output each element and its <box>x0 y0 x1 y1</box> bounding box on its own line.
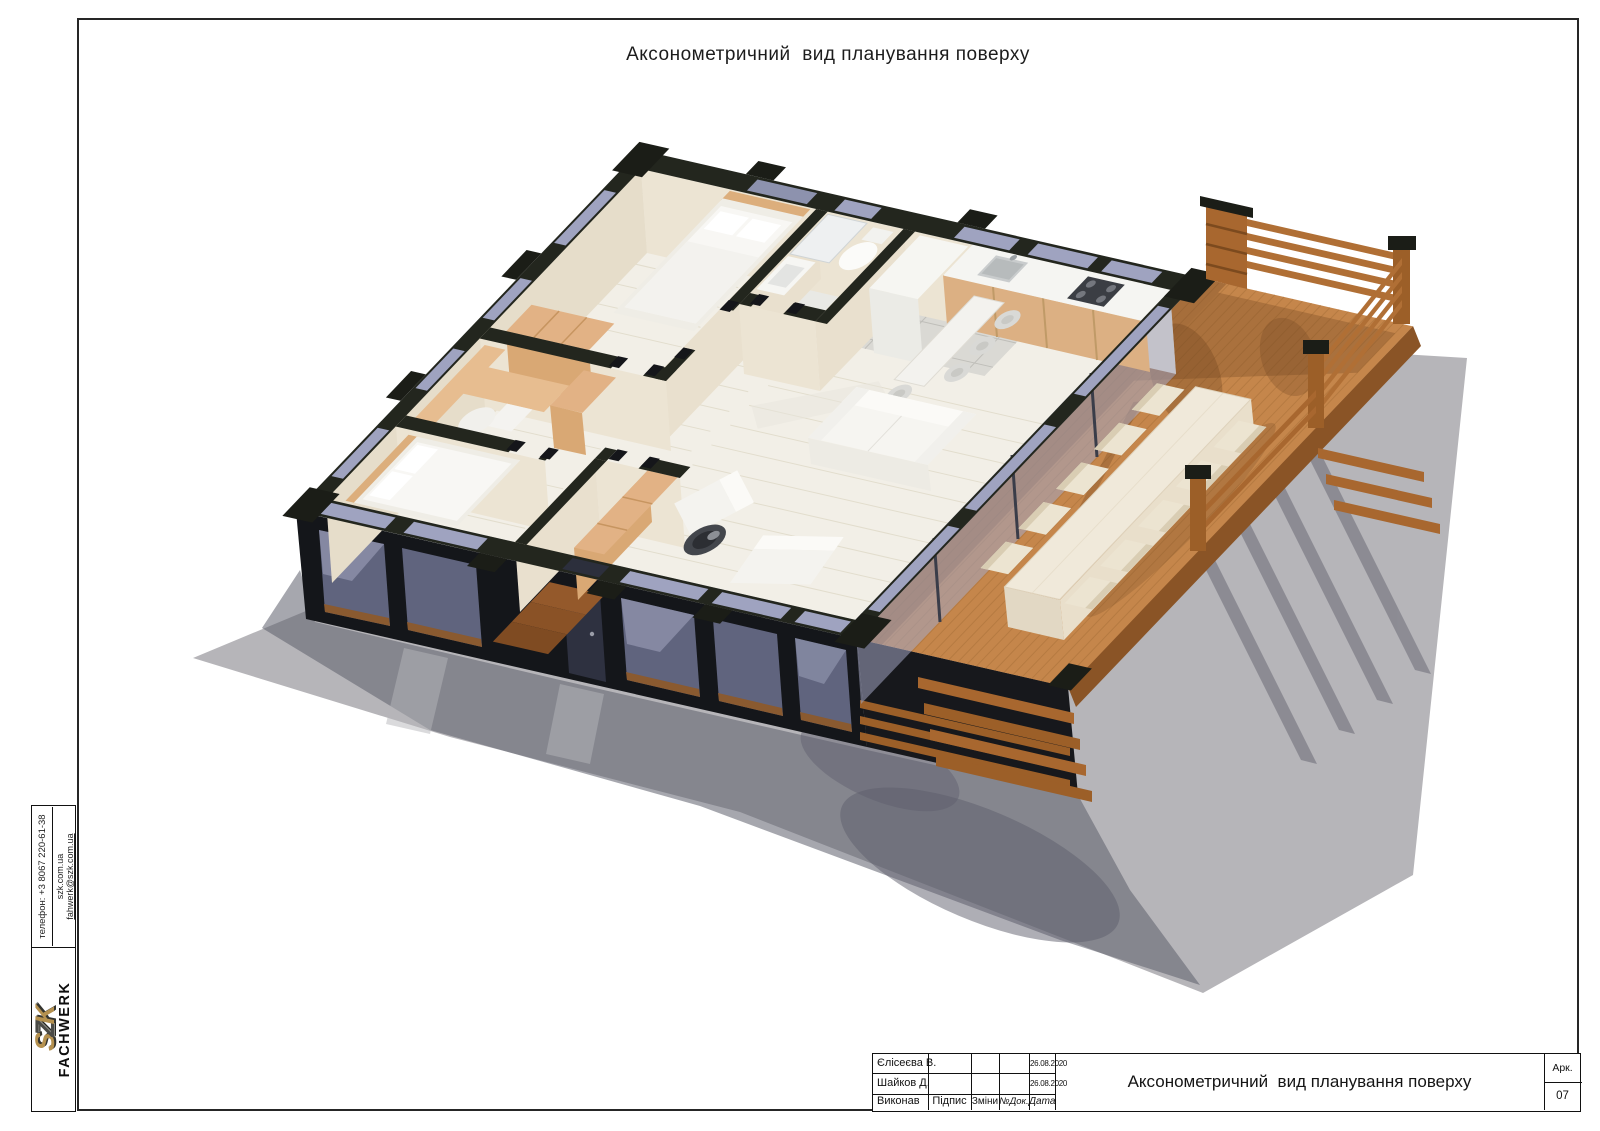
stamp-name-1: Єлісеєва В. <box>877 1054 928 1073</box>
logo-szk-letters: SZK <box>33 946 58 1112</box>
label-changes: Зміни <box>971 1092 999 1111</box>
phone-number: телефон: +3 8067 220-61-38 <box>33 807 53 946</box>
label-signature: Підпис <box>928 1092 971 1111</box>
sheet-number-value: 07 <box>1544 1083 1581 1110</box>
label-date: Дата <box>1029 1092 1055 1111</box>
title-block: Єлісеєва В. Шайков Д. 26.08.2020 26.08.2… <box>872 1053 1581 1112</box>
label-executed: Виконав <box>877 1092 928 1111</box>
axonometric-floor-plan-render <box>0 0 1600 1131</box>
website: szk.com.ua <box>54 807 65 946</box>
email: fahwerk@szk.com.ua <box>65 807 76 946</box>
sheet-number-label: Арк. <box>1544 1054 1581 1082</box>
logo-fachwerk-text: FACHWERK <box>58 949 73 1110</box>
contact-info: телефон: +3 8067 220-61-38 szk.com.ua fa… <box>33 807 75 946</box>
company-logo: SZK FACHWERK <box>33 949 75 1110</box>
drawing-sheet: Аксонометричний вид планування поверху <box>0 0 1600 1131</box>
stamp-title: Аксонометричний вид планування поверху <box>1055 1054 1544 1110</box>
stamp-name-2: Шайков Д. <box>877 1074 928 1093</box>
label-doc-no: №Док. <box>999 1092 1029 1111</box>
